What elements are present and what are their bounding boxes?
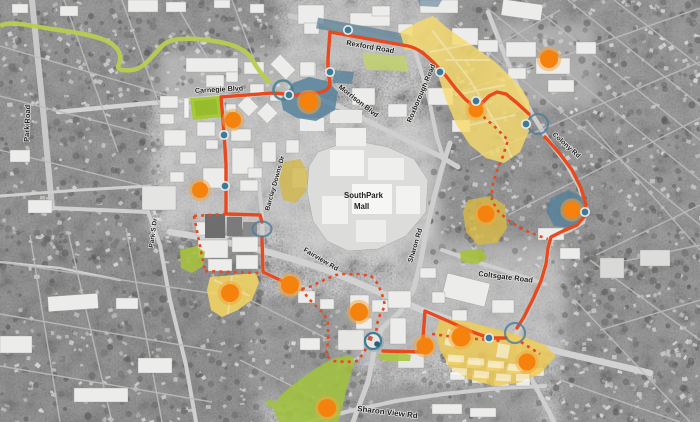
svg-text:SouthPark: SouthPark (344, 191, 384, 200)
svg-text:Mall: Mall (354, 202, 369, 211)
svg-text:Park Road: Park Road (22, 104, 32, 142)
